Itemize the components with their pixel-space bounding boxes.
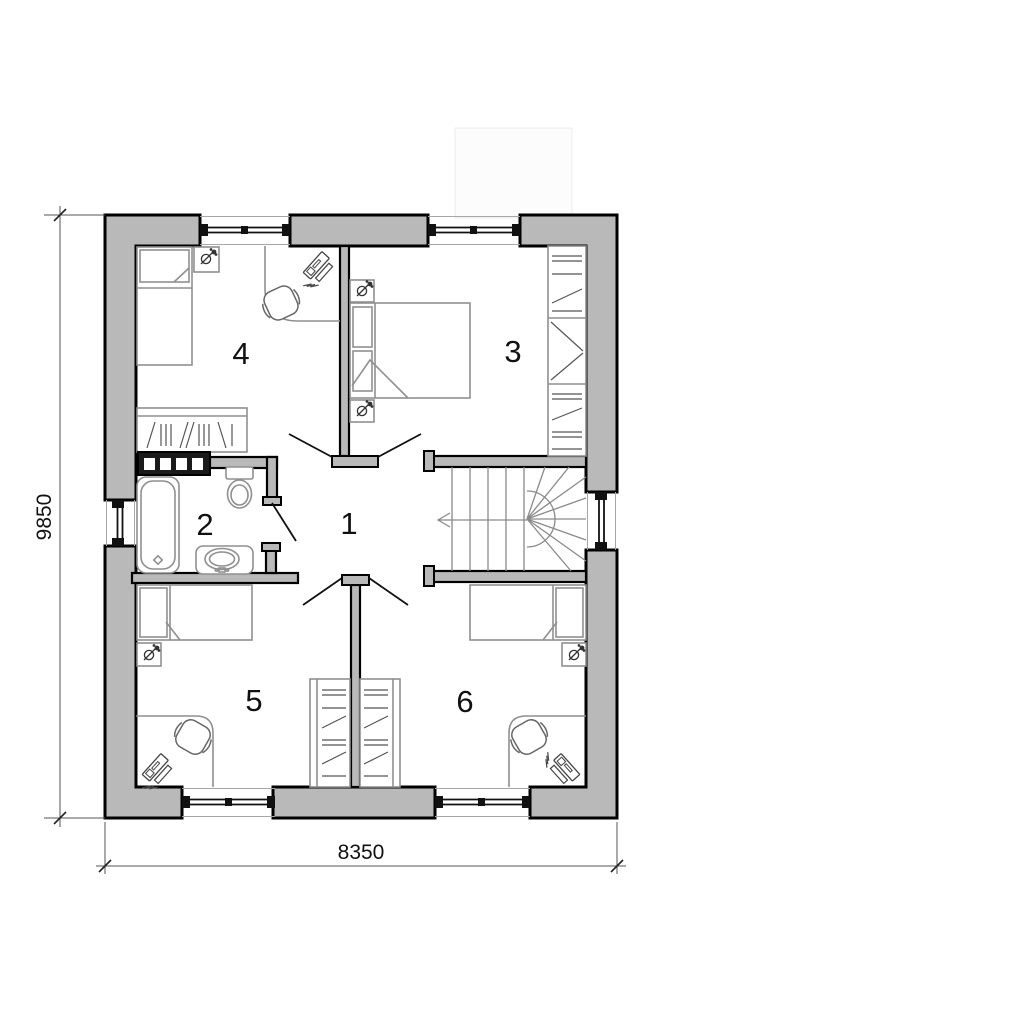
door-swing-bathroom <box>272 503 296 541</box>
toilet <box>226 467 253 508</box>
window-right-stairs <box>588 492 616 550</box>
door-swing-bedroom-3 <box>378 434 421 457</box>
wardrobe <box>310 679 350 787</box>
dimension-bottom: 8350 <box>96 822 626 874</box>
washbasin <box>196 546 253 574</box>
stair-north-wall <box>430 456 586 467</box>
bedroom-3 <box>350 246 586 456</box>
wall-pier-bottom-center <box>273 787 435 818</box>
nightstand <box>562 643 586 666</box>
wardrobe <box>360 679 400 787</box>
winder-treads <box>527 467 586 571</box>
window-bottom-right <box>435 789 530 817</box>
stair-south-cap <box>424 566 434 586</box>
partition-bedrooms-3-4 <box>340 246 349 456</box>
chimney-outline <box>455 128 572 218</box>
floor-plan-page: 1 2 3 4 5 6 9850 8350 <box>0 0 1020 1024</box>
wardrobe <box>548 246 586 456</box>
door-swing-bedroom-4 <box>289 434 332 457</box>
door-swing-bedroom-5 <box>303 578 342 605</box>
dimension-label-horizontal: 8350 <box>338 841 385 864</box>
floor-plan-drawing: 1 2 3 4 5 6 9850 8350 <box>0 0 1020 1024</box>
dimension-left: 9850 <box>33 206 105 827</box>
bathroom <box>137 452 253 574</box>
room-label-2: 2 <box>196 507 213 542</box>
room-label-3: 3 <box>504 334 521 369</box>
bathroom-stub-cap <box>262 543 280 551</box>
staircase <box>438 467 586 571</box>
partition-cap-bottom <box>342 575 369 585</box>
partition-cap-top <box>332 456 378 467</box>
single-bed <box>137 247 192 365</box>
room-label-5: 5 <box>245 683 262 718</box>
window-top-left <box>200 217 290 245</box>
nightstand <box>350 280 374 302</box>
double-bed <box>350 303 470 398</box>
bathtub <box>137 477 179 573</box>
window-top-right <box>428 217 520 245</box>
room-label-1: 1 <box>340 506 357 541</box>
single-bed <box>470 585 586 640</box>
radiator <box>138 452 210 475</box>
nightstand <box>137 643 161 666</box>
wall-pier-top-center <box>290 215 428 246</box>
room-label-4: 4 <box>232 336 249 371</box>
room-label-6: 6 <box>456 684 473 719</box>
wardrobe <box>137 408 247 452</box>
computer-icon <box>540 746 580 788</box>
nightstand <box>350 400 374 422</box>
computer-icon <box>296 252 336 294</box>
bathroom-south-stub <box>266 549 276 573</box>
stair-south-wall <box>430 571 586 582</box>
nightstand <box>194 247 219 272</box>
single-bed <box>137 585 252 640</box>
stair-north-cap <box>424 451 434 471</box>
partition-bedrooms-5-6 <box>351 585 360 787</box>
bedroom-5 <box>135 585 350 795</box>
dimension-label-vertical: 9850 <box>33 494 56 541</box>
window-bottom-left <box>182 789 275 817</box>
window-left-bathroom <box>107 500 135 546</box>
door-swing-bedroom-6 <box>369 578 408 605</box>
